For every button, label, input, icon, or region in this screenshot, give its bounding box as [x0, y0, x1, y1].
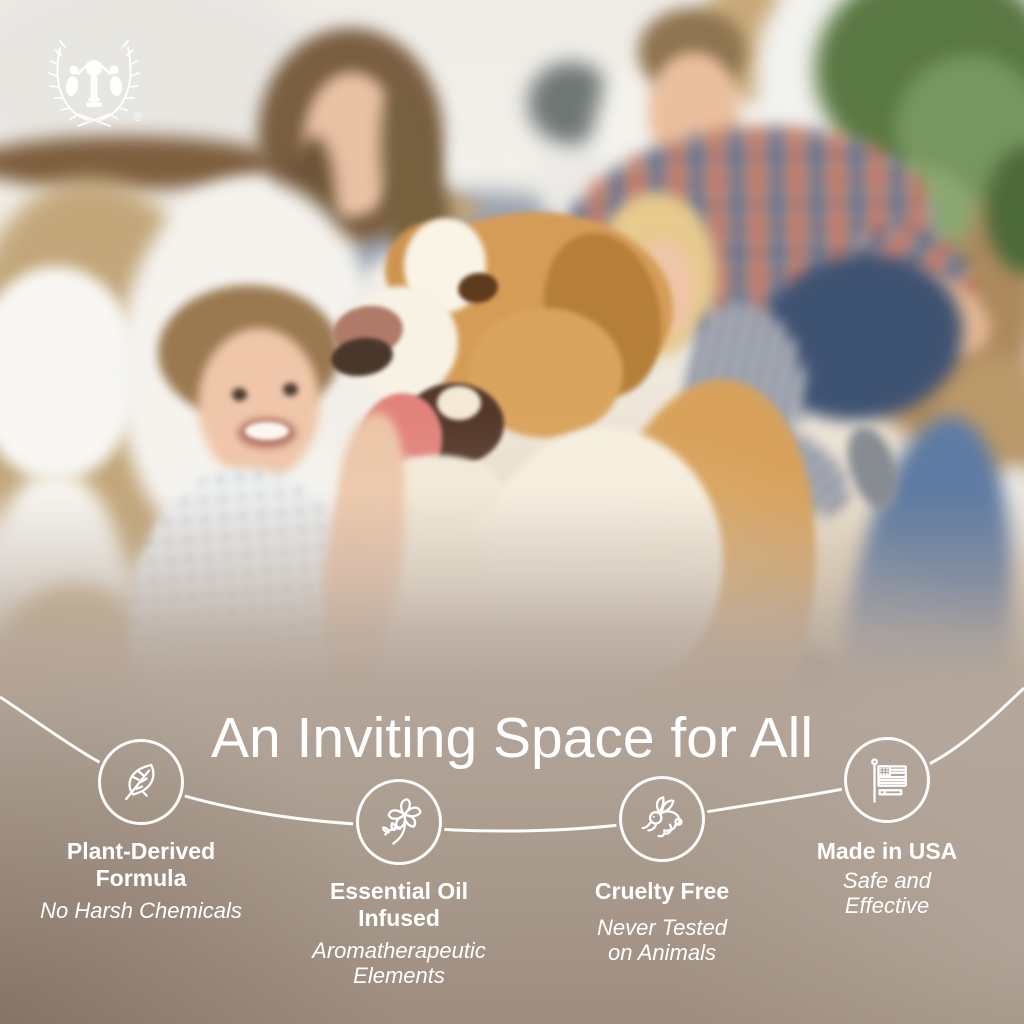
product-infographic: ® An Inviting Space for All [0, 0, 1024, 1024]
feature-circle [619, 776, 705, 862]
leaf-icon [116, 757, 166, 807]
feature-title: Plant-Derived Formula [0, 838, 291, 892]
children-and-fountain-silhouette [65, 60, 124, 107]
feature-subtitle: Safe and Effective [737, 868, 1024, 918]
feature-circle [98, 739, 184, 825]
feature-subtitle: Aromatherapeutic Elements [249, 938, 549, 988]
registered-trademark: ® [134, 110, 143, 124]
feature-subtitle: Never Tested on Animals [512, 915, 812, 965]
feature-circle [356, 779, 442, 865]
feature-circle [844, 737, 930, 823]
usa-flag-icon [862, 755, 912, 805]
rabbit-icon [637, 794, 687, 844]
feature-title: Essential Oil Infused [249, 878, 549, 932]
feature-title: Made in USA [737, 838, 1024, 865]
feature-subtitle: No Harsh Chemicals [0, 898, 291, 923]
flower-icon [374, 797, 424, 847]
